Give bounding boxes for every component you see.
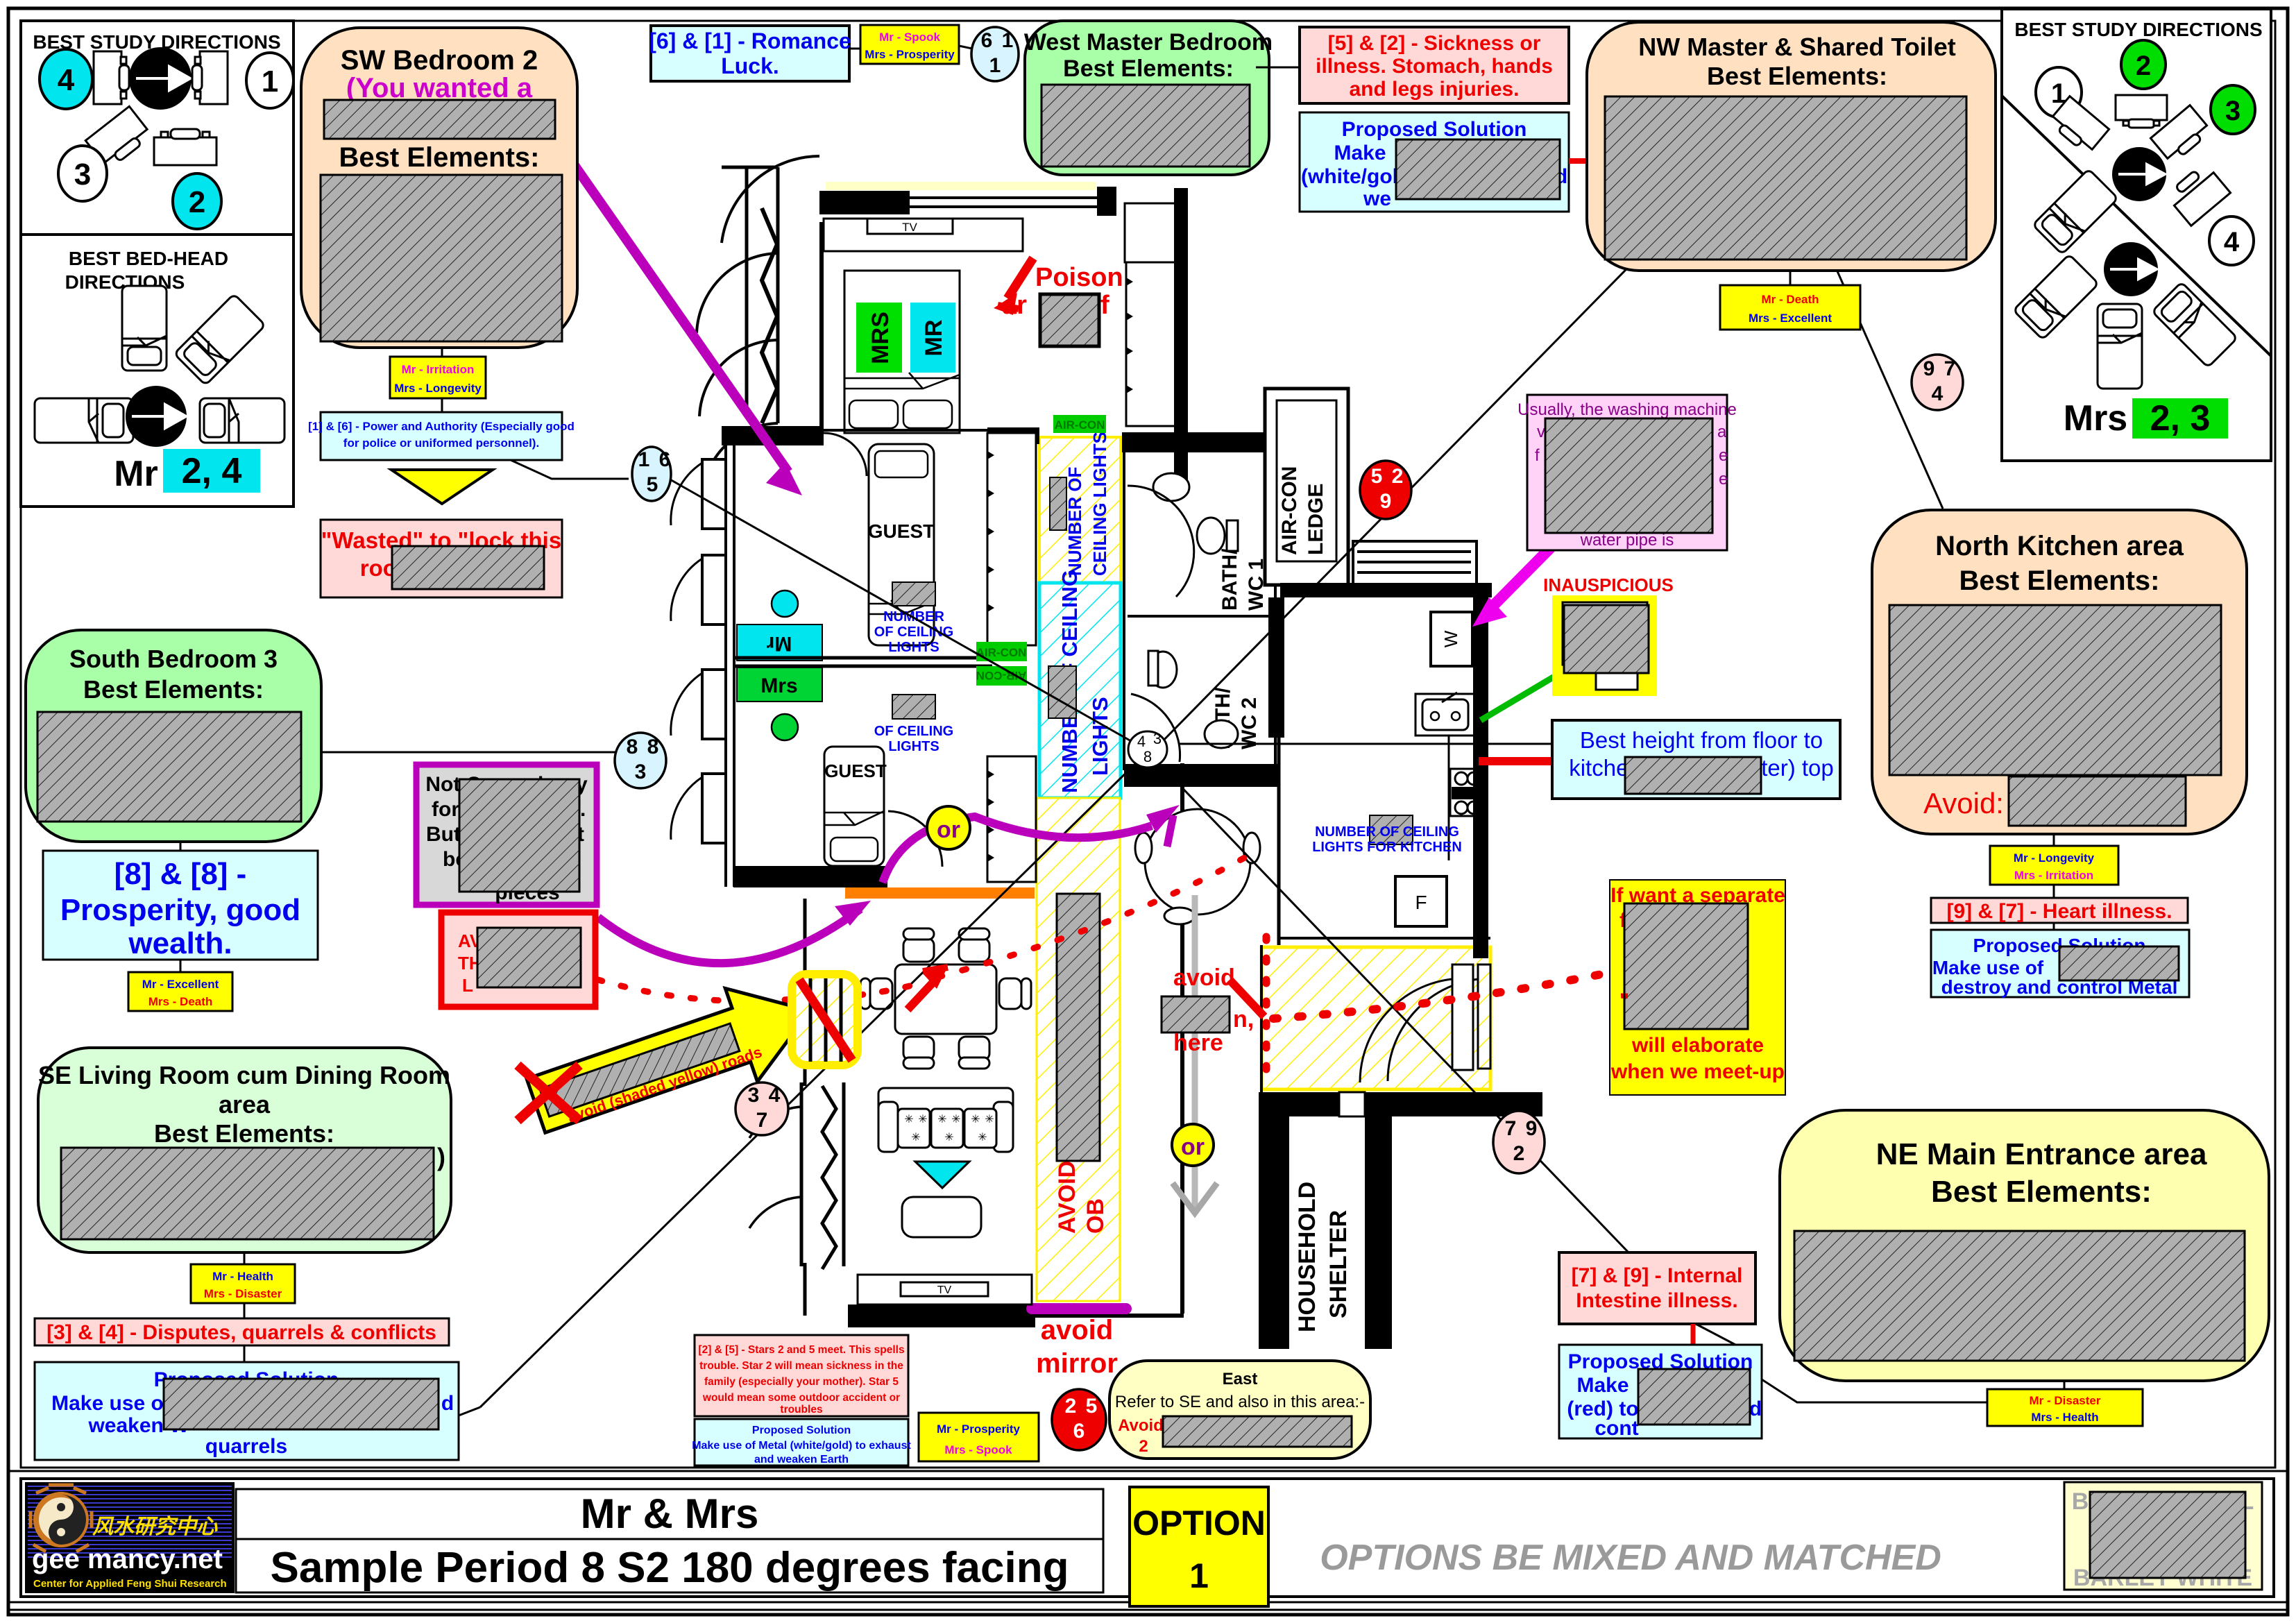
svg-text:Make: Make (1334, 142, 1386, 164)
svg-text:when we meet-up: when we meet-up (1610, 1060, 1785, 1083)
svg-text:Mrs - Health: Mrs - Health (2031, 1411, 2098, 1424)
svg-text:Mr - Health: Mr - Health (212, 1270, 273, 1283)
svg-text:d: d (1749, 1397, 1762, 1420)
svg-text:Sample Period 8 S2 180 degrees: Sample Period 8 S2 180 degrees facing (271, 1544, 1069, 1592)
svg-text:BEST STUDY DIRECTIONS: BEST STUDY DIRECTIONS (2014, 19, 2262, 40)
svg-text:4: 4 (769, 1084, 781, 1107)
svg-text:4: 4 (2224, 227, 2240, 257)
svg-text:Mr: Mr (114, 454, 158, 494)
svg-text:CEILING LIGHTS: CEILING LIGHTS (1089, 432, 1110, 576)
svg-text:LIGHTS: LIGHTS (1088, 697, 1112, 776)
svg-text:[7] & [9] - Internal: [7] & [9] - Internal (1572, 1264, 1743, 1287)
svg-text:✳: ✳ (937, 1114, 946, 1125)
svg-text:or: or (1181, 1134, 1205, 1160)
svg-text:Best Elements:: Best Elements: (339, 142, 540, 173)
svg-text:trouble. Star 2 will mean sick: trouble. Star 2 will mean sickness in th… (699, 1360, 903, 1372)
svg-text:W: W (1440, 630, 1461, 647)
svg-text:[6] & [1] - Romance: [6] & [1] - Romance (649, 28, 851, 53)
svg-text:[1] & [6] - Power and Authorit: [1] & [6] - Power and Authority (Especia… (308, 420, 575, 433)
svg-text:e: e (1719, 470, 1728, 488)
svg-text:West Master Bedroom: West Master Bedroom (1024, 29, 1273, 56)
svg-text:OF CEILING: OF CEILING (874, 624, 953, 640)
svg-text:✳: ✳ (971, 1114, 980, 1125)
svg-text:Best Elements:: Best Elements: (1931, 1175, 2152, 1209)
svg-text:(white/gol: (white/gol (1301, 165, 1398, 188)
svg-text:[5] & [2] - Sickness or: [5] & [2] - Sickness or (1328, 32, 1541, 55)
svg-text:5: 5 (1086, 1395, 1098, 1418)
svg-text:Mrs - Death: Mrs - Death (148, 995, 213, 1008)
svg-text:2, 3: 2, 3 (2150, 398, 2211, 439)
svg-text:Mrs - Excellent: Mrs - Excellent (1749, 312, 1832, 325)
svg-text:SHELTER: SHELTER (1325, 1210, 1352, 1318)
svg-text:8: 8 (647, 736, 659, 758)
svg-text:Usually, the washing machine: Usually, the washing machine (1517, 400, 1737, 419)
svg-text:GUEST: GUEST (824, 760, 887, 781)
svg-text:[3] & [4] - Disputes, quarrels: [3] & [4] - Disputes, quarrels & conflic… (46, 1321, 436, 1344)
svg-text:e: e (1719, 446, 1728, 465)
svg-text:Proposed Solution: Proposed Solution (1342, 118, 1527, 141)
svg-text:and legs injuries.: and legs injuries. (1349, 78, 1519, 101)
svg-text:Make: Make (1576, 1374, 1629, 1397)
svg-text:MR: MR (921, 320, 947, 357)
svg-text:Mr - Death: Mr - Death (1761, 293, 1819, 306)
svg-text:AVOID: AVOID (1054, 1161, 1080, 1234)
svg-text:2: 2 (2136, 51, 2151, 81)
svg-text:✳: ✳ (944, 1132, 953, 1144)
svg-text:风水研究中心: 风水研究中心 (92, 1515, 218, 1538)
svg-text:5: 5 (1371, 465, 1383, 488)
svg-text:1: 1 (638, 448, 650, 471)
svg-text:L: L (462, 975, 473, 996)
svg-text:South Bedroom 3: South Bedroom 3 (69, 645, 278, 673)
svg-text:4: 4 (58, 63, 75, 97)
svg-text:gee mancy.net: gee mancy.net (32, 1544, 223, 1574)
svg-text:d: d (441, 1392, 454, 1415)
svg-text:OF CEILING: OF CEILING (874, 724, 953, 739)
svg-text:Mr - Longevity: Mr - Longevity (2014, 851, 2095, 865)
svg-text:9: 9 (1923, 357, 1935, 380)
svg-text:NW Master & Shared Toilet: NW Master & Shared Toilet (1638, 33, 1955, 61)
svg-text:OB: OB (1082, 1198, 1109, 1234)
svg-text:7: 7 (1944, 357, 1956, 380)
svg-text:✳: ✳ (985, 1114, 994, 1125)
svg-text:F: F (1415, 892, 1427, 913)
svg-text:GUEST: GUEST (868, 520, 935, 542)
svg-text:": " (1619, 989, 1629, 1012)
svg-text:2: 2 (1139, 1437, 1148, 1456)
svg-text:North Kitchen area: North Kitchen area (1935, 531, 2184, 561)
svg-text:4: 4 (1932, 382, 1944, 405)
svg-text:quarrels: quarrels (205, 1435, 287, 1458)
svg-text:TV: TV (902, 221, 917, 234)
svg-text:BEST BED-HEAD: BEST BED-HEAD (69, 248, 228, 269)
svg-text:Prosperity, good: Prosperity, good (60, 893, 300, 927)
svg-text:6: 6 (981, 29, 993, 52)
svg-text:But: But (426, 823, 461, 846)
svg-text:✳: ✳ (911, 1132, 920, 1144)
svg-text:2: 2 (1392, 465, 1404, 488)
svg-text:for: for (432, 798, 459, 821)
svg-text:Mrs - Disaster: Mrs - Disaster (204, 1287, 282, 1300)
svg-text:avoid: avoid (1173, 965, 1235, 991)
svg-text:✳: ✳ (904, 1114, 913, 1125)
svg-text:3: 3 (635, 760, 647, 783)
svg-text:Mrs - Irritation: Mrs - Irritation (2014, 869, 2093, 882)
svg-text:): ) (437, 1143, 445, 1171)
svg-text:LIGHTS FOR KITCHEN: LIGHTS FOR KITCHEN (1312, 840, 1462, 855)
svg-text:LIGHTS: LIGHTS (888, 739, 939, 754)
svg-text:Mr - Irritation: Mr - Irritation (402, 363, 475, 376)
svg-text:area: area (219, 1090, 271, 1119)
svg-text:SW Bedroom 2: SW Bedroom 2 (341, 45, 538, 76)
svg-text:Luck.: Luck. (721, 53, 779, 78)
svg-text:Make use of: Make use of (1932, 957, 2044, 978)
svg-text:Intestine illness.: Intestine illness. (1576, 1289, 1737, 1312)
svg-text:3: 3 (2225, 96, 2240, 126)
svg-text:Mrs: Mrs (760, 674, 797, 697)
svg-text:AIR-CON: AIR-CON (1278, 466, 1301, 555)
svg-text:AIR-CON: AIR-CON (1055, 418, 1105, 432)
svg-text:3: 3 (74, 158, 91, 192)
svg-text:Best Elements:: Best Elements: (1707, 62, 1887, 90)
svg-text:Refer to SE and also in this a: Refer to SE and also in this area:- (1115, 1393, 1365, 1411)
svg-text:3: 3 (1153, 730, 1162, 747)
svg-text:8: 8 (1143, 748, 1152, 765)
svg-text:LEDGE: LEDGE (1304, 484, 1327, 555)
svg-text:9: 9 (1526, 1117, 1538, 1140)
svg-text:AIR-CON: AIR-CON (976, 669, 1027, 682)
svg-text:n,: n, (1233, 1006, 1254, 1033)
svg-text:OPTION: OPTION (1132, 1504, 1266, 1543)
svg-text:.: . (580, 798, 586, 821)
svg-text:Mr - Prosperity: Mr - Prosperity (937, 1422, 1021, 1436)
svg-text:Mrs: Mrs (2064, 398, 2127, 439)
svg-text:mirror: mirror (1036, 1348, 1118, 1379)
svg-text:7: 7 (756, 1109, 768, 1132)
svg-text:Avoid:: Avoid: (1923, 787, 2004, 819)
svg-text:[2] & [5] - Stars 2 and 5 meet: [2] & [5] - Stars 2 and 5 meet. This spe… (698, 1344, 904, 1356)
svg-text:Center for Applied Feng Shui R: Center for Applied Feng Shui Research (33, 1578, 227, 1590)
svg-text:and weaken Earth: and weaken Earth (754, 1454, 849, 1465)
svg-text:NE Main Entrance area: NE Main Entrance area (1876, 1137, 2207, 1171)
svg-text:for police or uniformed person: for police or uniformed personnel). (343, 436, 539, 450)
svg-text:[9] & [7] - Heart illness.: [9] & [7] - Heart illness. (1946, 900, 2172, 923)
svg-text:illness. Stomach, hands: illness. Stomach, hands (1316, 55, 1553, 78)
svg-text:OPTIONS BE MIXED AND MATCHED: OPTIONS BE MIXED AND MATCHED (1320, 1538, 1941, 1578)
svg-text:Mrs - Longevity: Mrs - Longevity (394, 382, 482, 395)
svg-text:will elaborate: will elaborate (1631, 1034, 1764, 1057)
svg-text:MRS: MRS (867, 312, 894, 364)
svg-text:Best Elements:: Best Elements: (1063, 56, 1234, 82)
svg-text:8: 8 (627, 736, 638, 758)
svg-text:Poison: Poison (1035, 263, 1123, 292)
svg-text:✳: ✳ (978, 1132, 987, 1144)
svg-text:Proposed Solution: Proposed Solution (752, 1425, 851, 1436)
svg-text:WC 2: WC 2 (1238, 697, 1261, 749)
svg-text:Mr: Mr (766, 632, 792, 655)
svg-text:wealth.: wealth. (128, 926, 232, 960)
svg-text:3: 3 (748, 1084, 760, 1107)
svg-text:we: we (1363, 187, 1391, 210)
svg-text:1: 1 (1189, 1556, 1209, 1595)
svg-text:Mr - Spook: Mr - Spook (879, 31, 940, 44)
svg-text:✳: ✳ (918, 1114, 927, 1125)
svg-text:1: 1 (1002, 29, 1014, 52)
svg-text:2, 4: 2, 4 (182, 451, 242, 491)
svg-text:Best Elements:: Best Elements: (154, 1119, 334, 1148)
svg-text:Mrs - Prosperity: Mrs - Prosperity (865, 48, 955, 61)
svg-text:a: a (1717, 423, 1727, 441)
svg-text:or: or (937, 817, 960, 843)
svg-text:6: 6 (1073, 1420, 1085, 1443)
svg-text:Best Elements:: Best Elements: (1959, 566, 2160, 596)
svg-text:Avoid:: Avoid: (1118, 1416, 1169, 1435)
svg-text:HOUSEHOLD: HOUSEHOLD (1294, 1182, 1320, 1332)
svg-text:9: 9 (1380, 490, 1392, 513)
svg-text:Make use of Metal (white/gold): Make use of Metal (white/gold) to exhaus… (692, 1440, 911, 1452)
svg-text:(You wanted a: (You wanted a (346, 73, 533, 103)
svg-text:avoid: avoid (1041, 1315, 1113, 1345)
svg-text:troubles: troubles (780, 1404, 822, 1416)
svg-text:Mr & Mrs: Mr & Mrs (581, 1490, 759, 1537)
svg-text:Mr - Excellent: Mr - Excellent (142, 978, 219, 991)
svg-text:2: 2 (1065, 1395, 1077, 1418)
svg-text:6: 6 (659, 448, 671, 471)
svg-text:2: 2 (1513, 1142, 1525, 1165)
svg-text:✳: ✳ (951, 1114, 960, 1125)
svg-text:5: 5 (647, 473, 658, 496)
svg-text:LIGHTS: LIGHTS (888, 640, 939, 655)
svg-text:Mr - Disaster: Mr - Disaster (2030, 1394, 2101, 1407)
svg-text:here: here (1173, 1030, 1223, 1056)
svg-text:Make use of: Make use of (51, 1392, 171, 1415)
svg-text:would mean some outdoor accide: would mean some outdoor accident or (702, 1392, 900, 1404)
svg-text:1: 1 (262, 65, 278, 99)
svg-text:family (especially your mother: family (especially your mother). Star 5 (704, 1376, 899, 1388)
svg-text:NUMBER OF: NUMBER OF (1064, 467, 1085, 576)
svg-text:cont: cont (1595, 1417, 1638, 1440)
svg-text:TV: TV (937, 1284, 952, 1296)
svg-text:7: 7 (1505, 1117, 1517, 1140)
svg-text:[8] & [8] -: [8] & [8] - (114, 857, 247, 891)
svg-text:v: v (1537, 423, 1545, 441)
svg-text:INAUSPICIOUS: INAUSPICIOUS (1543, 575, 1674, 595)
svg-text:BATH/: BATH/ (1218, 548, 1241, 611)
svg-text:f: f (1100, 291, 1109, 320)
svg-text:1: 1 (989, 54, 1001, 77)
svg-text:East: East (1223, 1370, 1258, 1388)
svg-text:Best height from floor to: Best height from floor to (1580, 727, 1823, 753)
svg-text:SE Living Room cum Dining Room: SE Living Room cum Dining Room (38, 1061, 450, 1089)
svg-text:Mrs - Spook: Mrs - Spook (944, 1443, 1012, 1456)
svg-text:f: f (1535, 446, 1540, 465)
svg-text:NUMBER OF CEILING: NUMBER OF CEILING (1315, 824, 1459, 840)
svg-text:2: 2 (189, 185, 205, 219)
svg-text:Best Elements:: Best Elements: (83, 675, 264, 704)
